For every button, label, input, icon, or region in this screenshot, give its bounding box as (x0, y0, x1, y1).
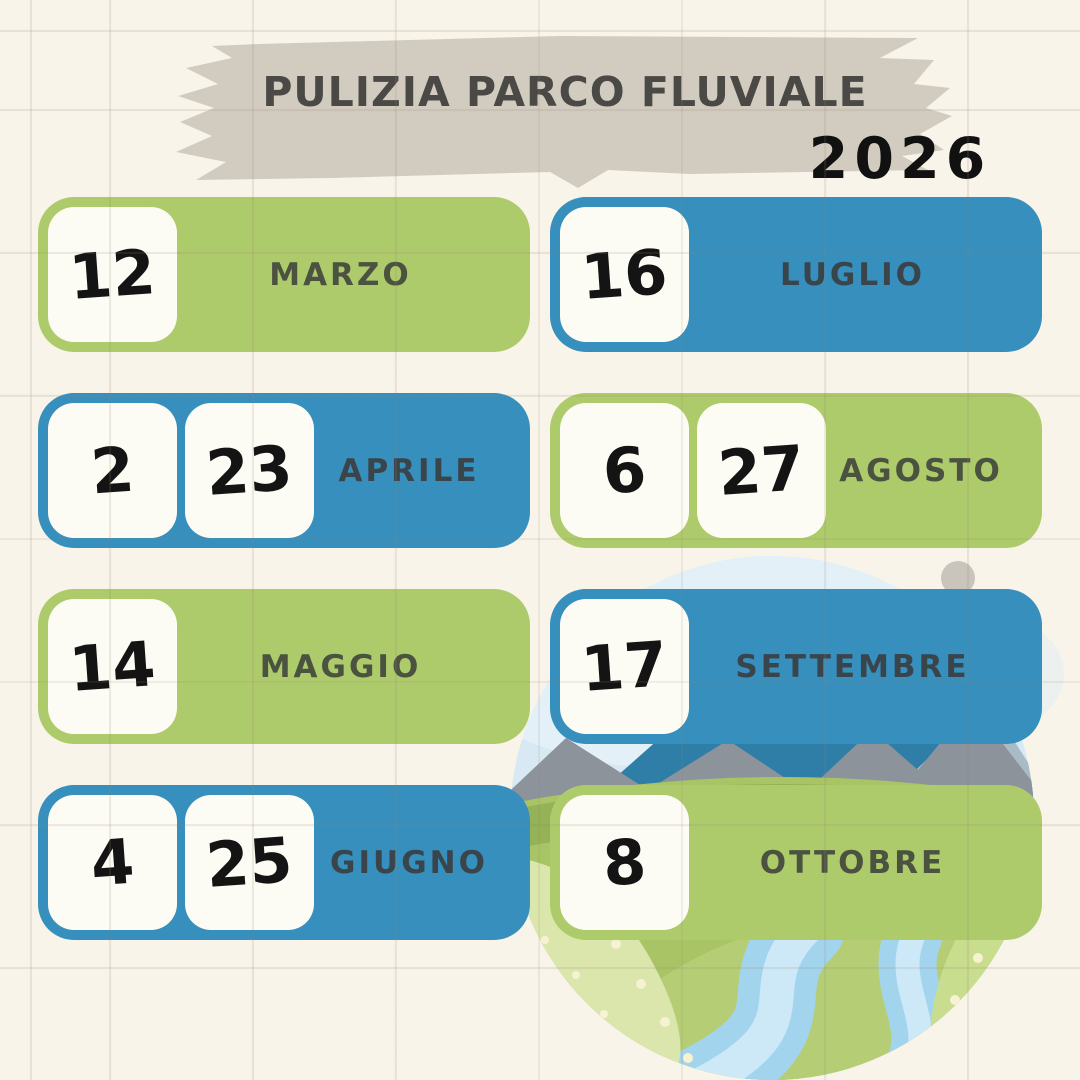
date-number: 8 (600, 825, 648, 901)
month-label: AGOSTO (834, 403, 1032, 538)
event-pill-luglio: 16 LUGLIO (550, 197, 1042, 352)
date-square: 12 (48, 207, 177, 342)
poster-canvas: PULIZIA PARCO FLUVIALE 2026 12 MARZO 16 … (0, 0, 1080, 1080)
date-square: 2 (48, 403, 177, 538)
event-pill-giugno: 4 25 GIUGNO (38, 785, 530, 940)
date-number: 2 (88, 433, 136, 509)
date-number: 16 (579, 235, 670, 314)
date-square: 8 (560, 795, 689, 930)
month-label: SETTEMBRE (697, 599, 1032, 734)
date-square: 27 (697, 403, 826, 538)
date-number: 27 (716, 431, 807, 510)
month-label: LUGLIO (697, 207, 1032, 342)
month-label: MAGGIO (185, 599, 520, 734)
date-square: 25 (185, 795, 314, 930)
date-number: 6 (600, 433, 648, 509)
date-number: 4 (88, 825, 136, 901)
month-label: GIUGNO (322, 795, 520, 930)
date-number: 12 (67, 235, 158, 314)
schedule-grid: 12 MARZO 16 LUGLIO 2 23 APRILE 6 27 AGOS… (38, 197, 1042, 940)
date-number: 23 (204, 431, 295, 510)
event-pill-aprile: 2 23 APRILE (38, 393, 530, 548)
month-label: OTTOBRE (697, 795, 1032, 930)
date-square: 16 (560, 207, 689, 342)
date-square: 14 (48, 599, 177, 734)
date-number: 14 (67, 627, 158, 706)
date-number: 25 (204, 823, 295, 902)
event-pill-settembre: 17 SETTEMBRE (550, 589, 1042, 744)
month-label: APRILE (322, 403, 520, 538)
event-pill-ottobre: 8 OTTOBRE (550, 785, 1042, 940)
event-pill-marzo: 12 MARZO (38, 197, 530, 352)
month-label: MARZO (185, 207, 520, 342)
date-number: 17 (579, 627, 670, 706)
date-square: 4 (48, 795, 177, 930)
date-square: 23 (185, 403, 314, 538)
date-square: 17 (560, 599, 689, 734)
event-pill-agosto: 6 27 AGOSTO (550, 393, 1042, 548)
date-square: 6 (560, 403, 689, 538)
event-pill-maggio: 14 MAGGIO (38, 589, 530, 744)
